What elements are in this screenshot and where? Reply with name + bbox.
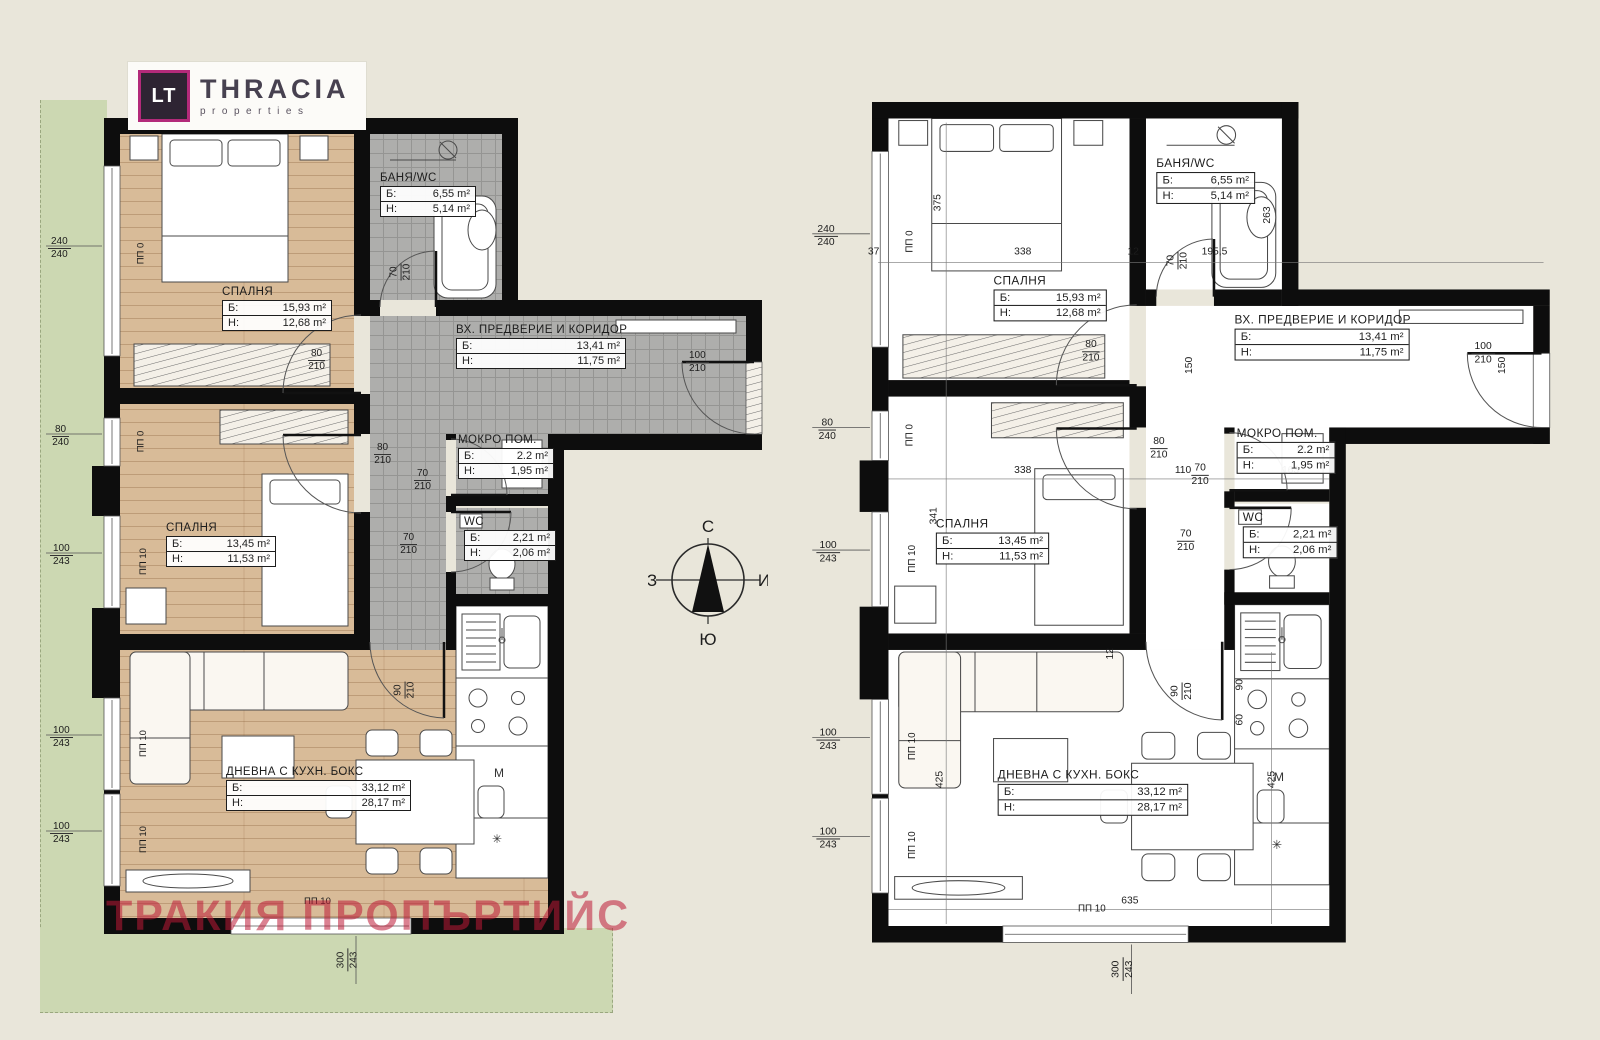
room-area-row: Б:13,45 m² bbox=[167, 537, 275, 551]
panel-label: ПП 10 bbox=[907, 831, 918, 859]
room-name: БАНЯ/WC bbox=[1156, 158, 1255, 170]
room-area-box: Б:6,55 m²H:5,14 m² bbox=[380, 186, 476, 217]
room-label-bathroom: БАНЯ/WCБ:6,55 m²H:5,14 m² bbox=[1156, 158, 1255, 204]
dim-label: 70210 bbox=[400, 532, 417, 556]
room-area-row: Б:33,12 m² bbox=[227, 781, 410, 795]
room-area-row: Б:15,93 m² bbox=[223, 301, 331, 315]
dim-label: 70210 bbox=[414, 468, 431, 492]
dim-label: 80210 bbox=[308, 348, 325, 372]
dim-label: 80210 bbox=[374, 442, 391, 466]
fixture-mark: ✳ bbox=[1272, 837, 1282, 851]
dim-label: 100210 bbox=[1471, 341, 1494, 366]
panel-label: ПП 0 bbox=[904, 424, 915, 446]
room-area-row: H:2,06 m² bbox=[465, 545, 555, 560]
panel-label: ПП 10 bbox=[907, 732, 918, 760]
room-area-row: H:11,75 m² bbox=[457, 353, 625, 368]
room-name: WC bbox=[464, 516, 556, 528]
room-label-corridor: ВХ. ПРЕДВЕРИЕ И КОРИДОРБ:13,41 m²H:11,75… bbox=[456, 324, 626, 369]
dim-label: 150 bbox=[1497, 357, 1509, 374]
room-label-utility: МОКРО ПОМ.Б:2.2 m²H:1,95 m² bbox=[1237, 427, 1336, 473]
dim-label: 37 bbox=[868, 246, 879, 258]
dim-label: 338 bbox=[1014, 465, 1031, 477]
dim-label: 100243 bbox=[50, 821, 73, 845]
room-name: WC bbox=[1243, 512, 1338, 524]
room-area-box: Б:15,93 m²H:12,68 m² bbox=[994, 289, 1107, 321]
room-name: СПАЛНЯ bbox=[222, 286, 332, 298]
room-area-row: Б:2.2 m² bbox=[459, 449, 553, 463]
dim-label: 635 bbox=[1121, 895, 1138, 907]
room-area-box: Б:13,45 m²H:11,53 m² bbox=[936, 533, 1049, 565]
room-area-row: H:1,95 m² bbox=[459, 463, 553, 478]
room-area-box: Б:15,93 m²H:12,68 m² bbox=[222, 300, 332, 331]
logo-monogram-icon: LT bbox=[138, 70, 190, 122]
dim-label: 90210 bbox=[393, 681, 417, 698]
room-label-utility: МОКРО ПОМ.Б:2.2 m²H:1,95 m² bbox=[458, 434, 554, 479]
room-name: СПАЛНЯ bbox=[166, 522, 276, 534]
dim-label: 100243 bbox=[816, 826, 839, 851]
room-area-box: Б:2.2 m²H:1,95 m² bbox=[1237, 442, 1336, 474]
compass-east: И bbox=[758, 571, 768, 590]
watermark: ТРАКИЯ ПРОПЪРТИЙС bbox=[106, 892, 630, 941]
room-area-box: Б:13,41 m²H:11,75 m² bbox=[456, 338, 626, 369]
compass-west: З bbox=[648, 571, 657, 590]
panel-label: ПП 10 bbox=[1078, 903, 1106, 914]
room-area-row: H:11,53 m² bbox=[937, 548, 1048, 563]
room-area-row: Б:13,45 m² bbox=[937, 534, 1048, 548]
fixture-mark: М bbox=[1274, 769, 1284, 783]
compass-south: Ю bbox=[699, 630, 716, 648]
room-area-row: H:12,68 m² bbox=[223, 315, 331, 330]
room-name: ДНЕВНА С КУХН. БОКС bbox=[226, 766, 411, 778]
dim-label: 100210 bbox=[686, 350, 709, 374]
dim-label: 375 bbox=[932, 194, 944, 211]
room-label-wc: WCБ:2,21 m²H:2,06 m² bbox=[464, 516, 556, 561]
room-area-row: Б:13,41 m² bbox=[457, 339, 625, 353]
room-name: СПАЛНЯ bbox=[936, 518, 1049, 530]
dim-label: 425 bbox=[934, 771, 946, 788]
room-area-row: H:5,14 m² bbox=[1157, 187, 1254, 202]
room-label-bedroom1: СПАЛНЯБ:15,93 m²H:12,68 m² bbox=[994, 275, 1107, 321]
dim-label: 80210 bbox=[1150, 436, 1168, 461]
room-area-row: H:11,53 m² bbox=[167, 551, 275, 566]
room-name: МОКРО ПОМ. bbox=[458, 434, 554, 446]
room-area-row: H:28,17 m² bbox=[227, 795, 410, 810]
panel-label: ПП 0 bbox=[135, 431, 146, 453]
panel-label: ПП 0 bbox=[135, 243, 146, 265]
room-area-box: Б:33,12 m²H:28,17 m² bbox=[998, 784, 1189, 816]
room-area-row: H:11,75 m² bbox=[1236, 344, 1409, 359]
panel-label: ПП 10 bbox=[138, 826, 149, 853]
room-area-row: Б:6,55 m² bbox=[1157, 173, 1254, 187]
floor-plan-measured: БАНЯ/WCБ:6,55 m²H:5,14 m²СПАЛНЯБ:15,93 m… bbox=[872, 102, 1550, 942]
dim-label: 90 bbox=[1234, 679, 1246, 690]
panel-label: ПП 0 bbox=[904, 230, 915, 252]
dim-label: 240240 bbox=[48, 236, 71, 260]
room-area-box: Б:6,55 m²H:5,14 m² bbox=[1156, 172, 1255, 204]
dim-label: 12 bbox=[1105, 648, 1117, 659]
room-label-bedroom2: СПАЛНЯБ:13,45 m²H:11,53 m² bbox=[166, 522, 276, 567]
logo-subtitle: properties bbox=[200, 106, 350, 117]
dim-label: 80210 bbox=[1082, 339, 1100, 364]
dim-label: 110 bbox=[1175, 465, 1191, 477]
room-name: МОКРО ПОМ. bbox=[1237, 427, 1336, 439]
room-area-box: Б:2.2 m²H:1,95 m² bbox=[458, 448, 554, 479]
room-area-row: H:5,14 m² bbox=[381, 201, 475, 216]
room-label-bedroom2: СПАЛНЯБ:13,45 m²H:11,53 m² bbox=[936, 518, 1049, 564]
room-area-row: H:1,95 m² bbox=[1238, 457, 1335, 472]
room-area-row: Б:15,93 m² bbox=[995, 290, 1106, 304]
room-area-row: Б:2.2 m² bbox=[1238, 443, 1335, 457]
dim-label: 263 bbox=[1262, 206, 1274, 223]
dim-label: 70210 bbox=[1177, 528, 1195, 553]
room-label-wc: WCБ:2,21 m²H:2,06 m² bbox=[1243, 512, 1338, 558]
room-name: ВХ. ПРЕДВЕРИЕ И КОРИДОР bbox=[1235, 314, 1410, 326]
dim-label: 12 bbox=[1127, 246, 1138, 258]
room-area-row: H:28,17 m² bbox=[999, 799, 1187, 814]
room-label-bathroom: БАНЯ/WCБ:6,55 m²H:5,14 m² bbox=[380, 172, 476, 217]
room-name: БАНЯ/WC bbox=[380, 172, 476, 184]
room-name: ВХ. ПРЕДВЕРИЕ И КОРИДОР bbox=[456, 324, 626, 336]
fixture-mark: М bbox=[494, 766, 504, 780]
dim-label: 60 bbox=[1234, 714, 1246, 725]
dim-label: 150 bbox=[1184, 357, 1196, 374]
dim-label: 70210 bbox=[1191, 463, 1209, 488]
room-area-row: H:12,68 m² bbox=[995, 305, 1106, 320]
room-area-row: H:2,06 m² bbox=[1244, 542, 1337, 557]
panel-label: ПП 10 bbox=[138, 730, 149, 757]
dim-label: 100243 bbox=[816, 540, 839, 565]
room-name: СПАЛНЯ bbox=[994, 275, 1107, 287]
dim-label: 100243 bbox=[816, 727, 839, 752]
room-label-corridor: ВХ. ПРЕДВЕРИЕ И КОРИДОРБ:13,41 m²H:11,75… bbox=[1235, 314, 1410, 360]
room-area-row: Б:13,41 m² bbox=[1236, 330, 1409, 344]
fixture-mark: ✳ bbox=[492, 832, 502, 846]
dim-label: 80240 bbox=[818, 417, 836, 442]
dim-label: 70210 bbox=[1165, 252, 1190, 270]
logo: LT THRACIA properties bbox=[128, 62, 366, 130]
logo-brand: THRACIA bbox=[200, 76, 350, 103]
dim-label: 100243 bbox=[50, 543, 73, 567]
room-area-box: Б:13,41 m²H:11,75 m² bbox=[1235, 329, 1410, 361]
room-area-row: Б:2,21 m² bbox=[1244, 527, 1337, 541]
dim-label: 300243 bbox=[335, 949, 359, 972]
room-area-row: Б:2,21 m² bbox=[465, 531, 555, 545]
room-area-box: Б:2,21 m²H:2,06 m² bbox=[1243, 526, 1338, 558]
dim-label: 300243 bbox=[1110, 958, 1135, 981]
dim-label: 338 bbox=[1014, 246, 1031, 258]
room-label-bedroom1: СПАЛНЯБ:15,93 m²H:12,68 m² bbox=[222, 286, 332, 331]
dim-label: 80240 bbox=[52, 424, 69, 448]
room-area-row: Б:6,55 m² bbox=[381, 187, 475, 201]
room-area-box: Б:13,45 m²H:11,53 m² bbox=[166, 536, 276, 567]
dim-label: 70210 bbox=[389, 263, 413, 280]
compass-north: С bbox=[702, 517, 714, 536]
dim-label: 240240 bbox=[814, 224, 837, 249]
dim-label: 90210 bbox=[1169, 682, 1194, 700]
compass-icon: С Ю З И bbox=[648, 498, 768, 648]
room-area-box: Б:2,21 m²H:2,06 m² bbox=[464, 530, 556, 561]
dim-label: 100243 bbox=[50, 725, 73, 749]
room-label-living: ДНЕВНА С КУХН. БОКСБ:33,12 m²H:28,17 m² bbox=[998, 769, 1189, 815]
panel-label: ПП 10 bbox=[907, 545, 918, 573]
compass-rose: С Ю З И bbox=[648, 498, 768, 648]
panel-label: ПП 10 bbox=[138, 548, 149, 575]
dim-label: 195,5 bbox=[1202, 246, 1228, 258]
room-area-row: Б:33,12 m² bbox=[999, 785, 1187, 799]
room-label-living: ДНЕВНА С КУХН. БОКСБ:33,12 m²H:28,17 m² bbox=[226, 766, 411, 811]
room-name: ДНЕВНА С КУХН. БОКС bbox=[998, 769, 1189, 781]
room-area-box: Б:33,12 m²H:28,17 m² bbox=[226, 780, 411, 811]
